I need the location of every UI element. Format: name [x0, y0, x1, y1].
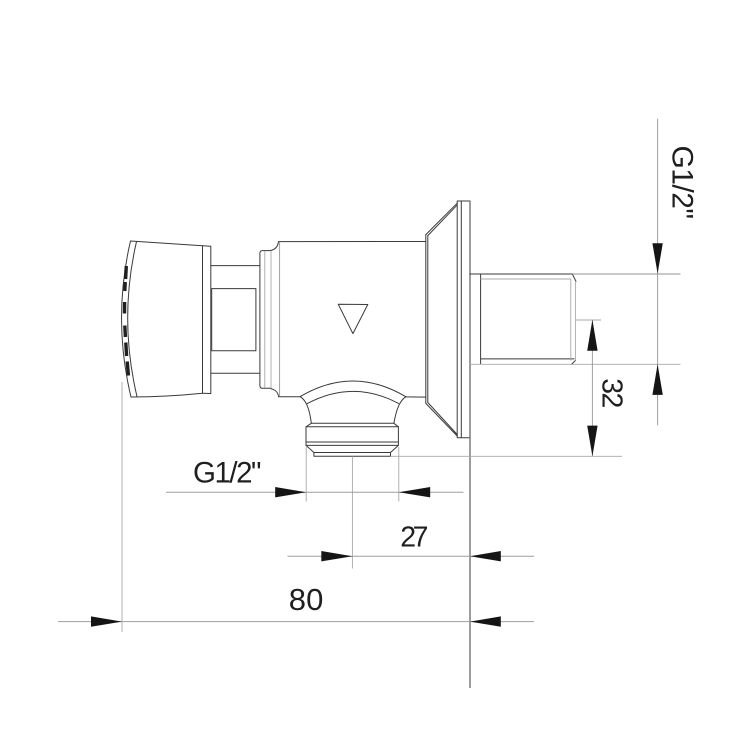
svg-text:G1/2": G1/2": [193, 457, 262, 490]
svg-text:32: 32: [595, 378, 627, 408]
svg-text:80: 80: [289, 582, 324, 617]
svg-text:27: 27: [400, 522, 428, 554]
svg-text:G1/2": G1/2": [666, 146, 699, 220]
